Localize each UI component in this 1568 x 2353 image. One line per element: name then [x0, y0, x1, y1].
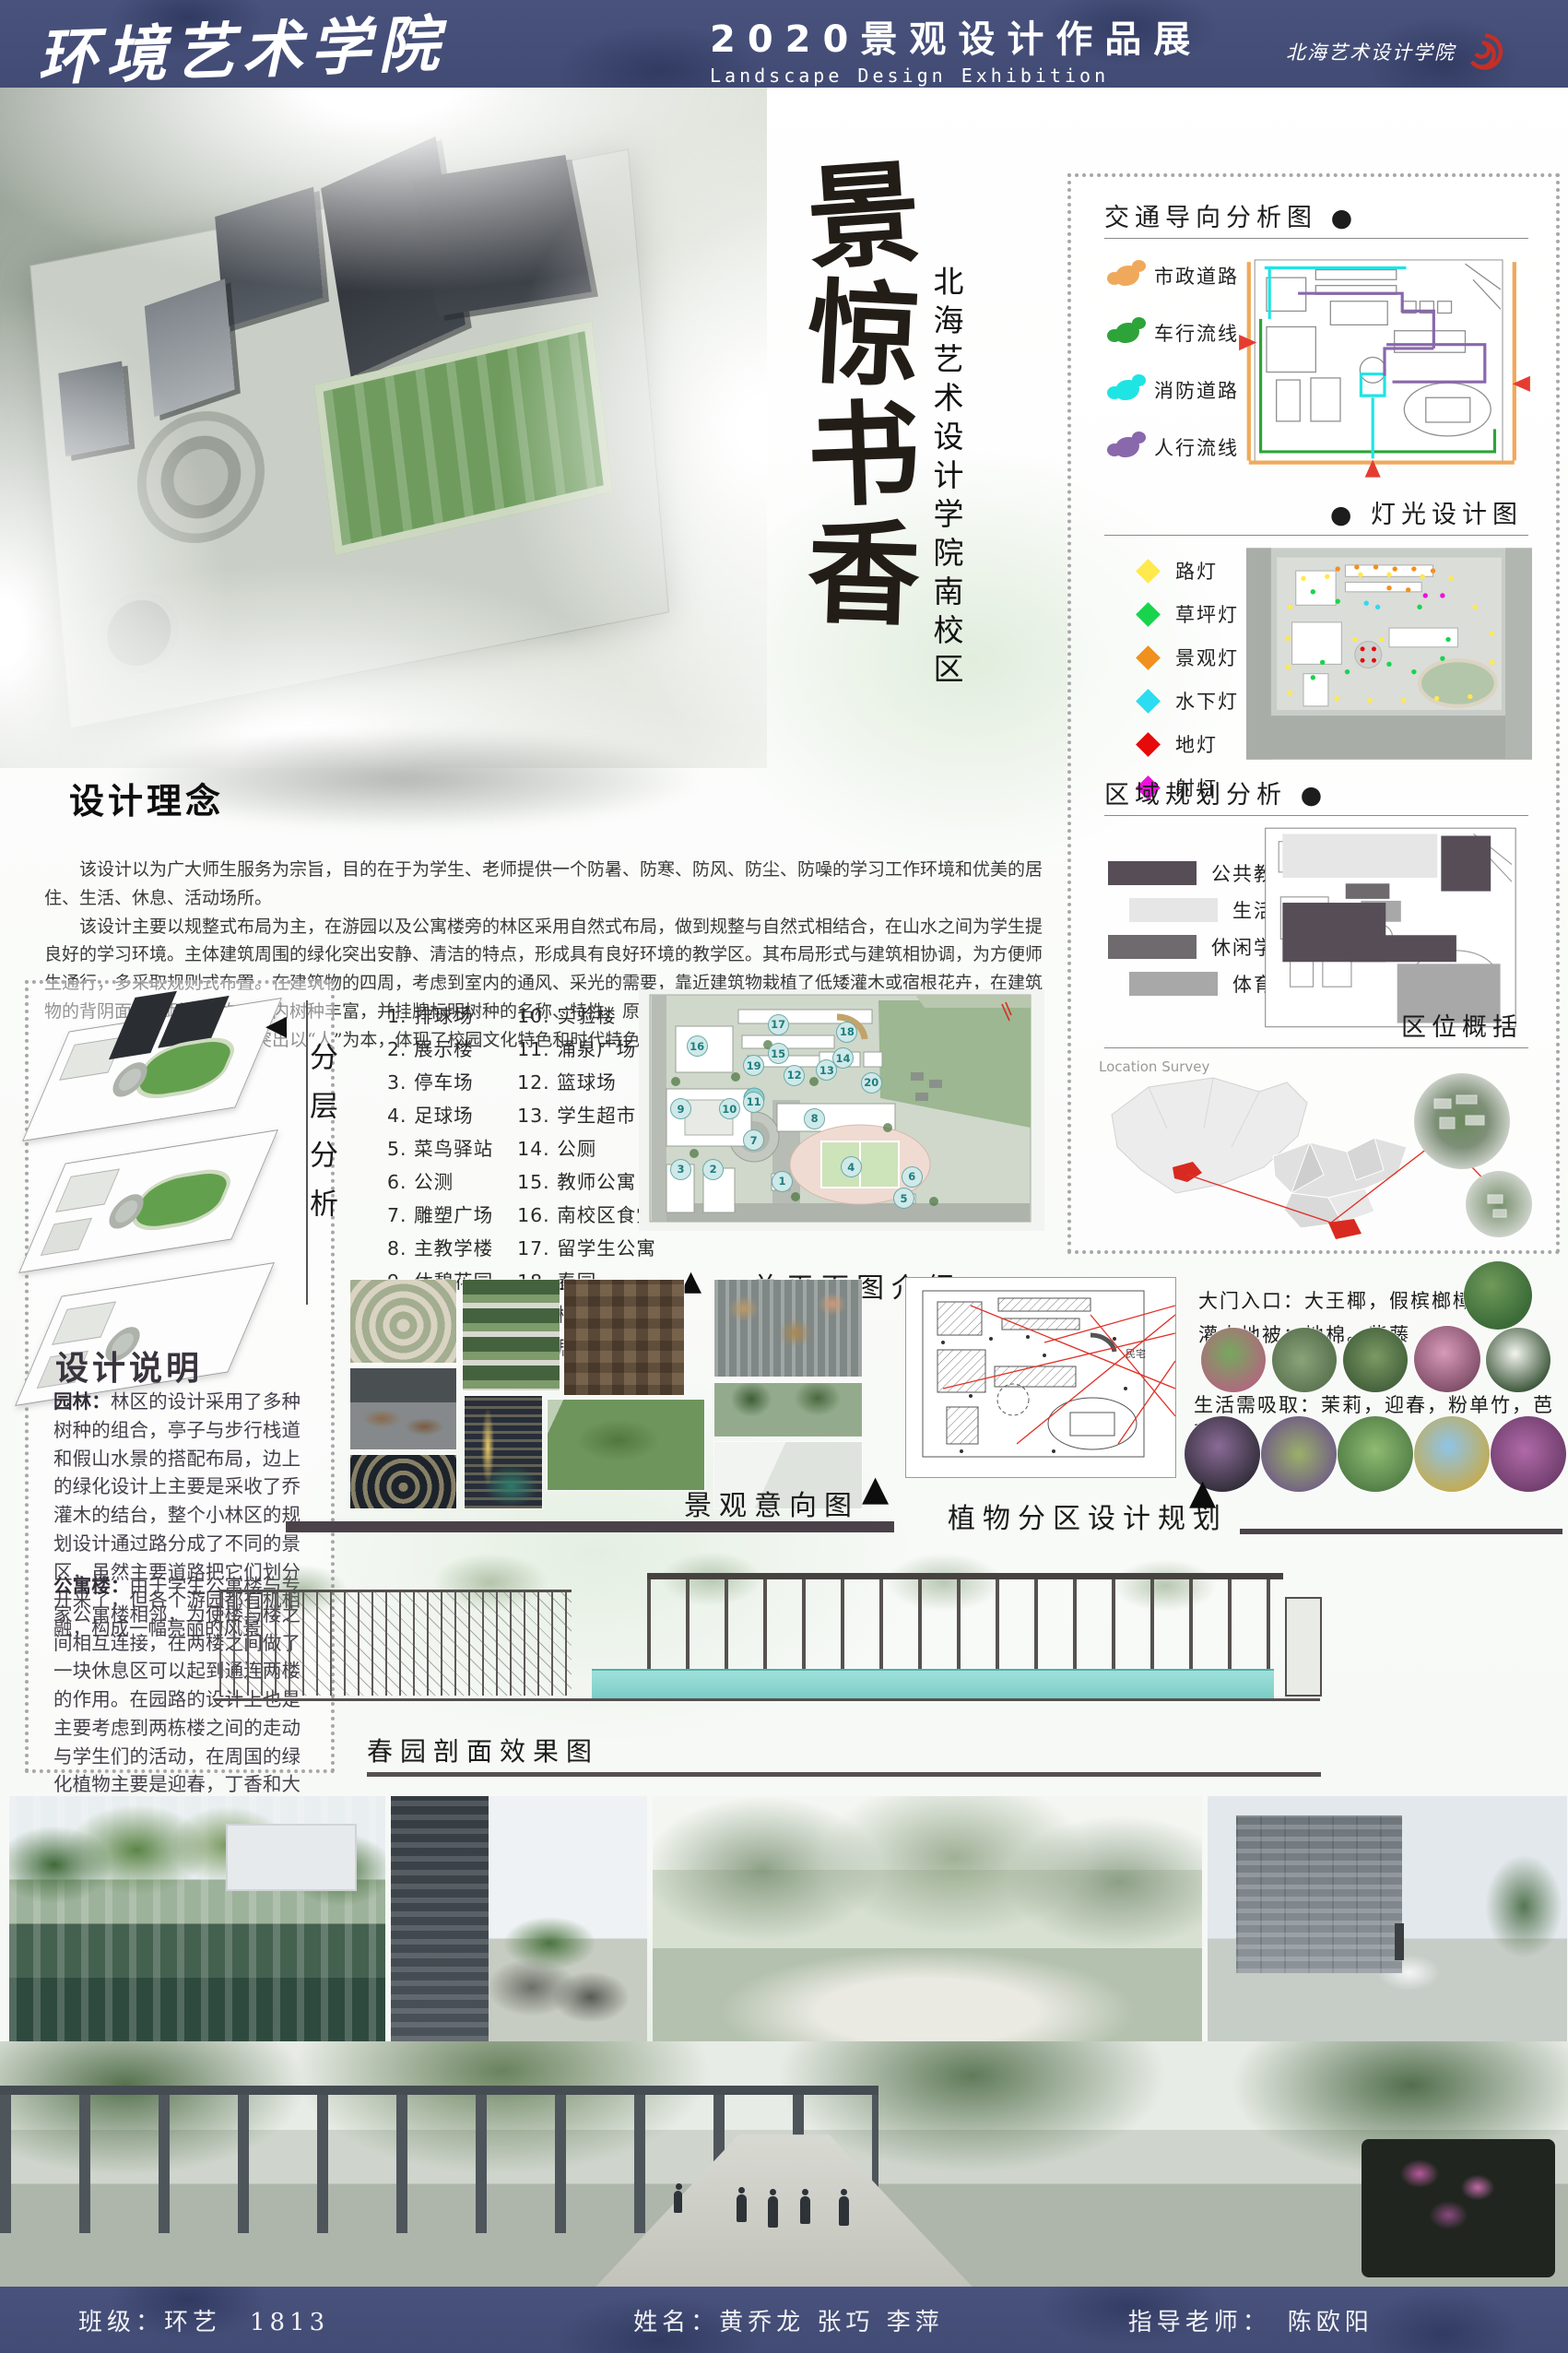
intent-photo [465, 1396, 542, 1508]
plant-photo [1272, 1328, 1337, 1392]
plan-legend-item: 12. 篮球场 [517, 1067, 656, 1094]
plate-building-footprint [41, 1218, 92, 1256]
legend-row: 消防道路 [1115, 376, 1239, 404]
plan-marker: 19 [743, 1055, 764, 1076]
legend-label: 水下灯 [1175, 687, 1239, 715]
description-term: 园林： [53, 1390, 111, 1413]
render-photo-campus-towers [1208, 1796, 1567, 2041]
plate-building-footprint [52, 1301, 116, 1345]
plan-marker: 12 [784, 1065, 805, 1086]
diamond-legend-icon [1136, 732, 1161, 757]
plan-marker: 15 [768, 1043, 789, 1064]
person-silhouette [800, 2196, 810, 2224]
footer-advisor: 指导老师： 陈欧阳 [1128, 2303, 1373, 2337]
campus-aerial-render [0, 88, 767, 768]
plant-plan-drawing: 民宅 [906, 1278, 1175, 1477]
layers-analysis-label: 分层分析 [301, 1042, 342, 1237]
calligraphy-char: 惊 [783, 272, 946, 399]
plan-legend-item: 11. 涌泉广场 [517, 1034, 656, 1061]
plate-building-footprint [55, 1168, 120, 1212]
section-water [592, 1669, 1274, 1698]
plan-marker: 16 [687, 1035, 708, 1057]
spring-garden-section-drawing [214, 1532, 1320, 1701]
legend-label: 车行流线 [1154, 319, 1239, 347]
legend-row: 人行流线 [1115, 433, 1239, 461]
diamond-legend-icon [1136, 689, 1161, 714]
plan-legend-item: 13. 学生超市 [517, 1100, 656, 1128]
person-silhouette [674, 2191, 682, 2213]
up-triangle-icon: ▲ [862, 1468, 889, 1508]
concept-paragraph: 该设计以为广大师生服务为宗旨，目的在于为学生、老师提供一个防暑、防寒、防风、防尘… [44, 856, 1051, 913]
spiral-logo-icon [1465, 31, 1505, 72]
plan-marker: 17 [768, 1014, 789, 1035]
plan-marker: 1 [772, 1171, 793, 1192]
plan-marker: 14 [832, 1047, 854, 1069]
plant-photo [1414, 1416, 1490, 1492]
traffic-analysis-map [1237, 249, 1532, 479]
plan-marker: 4 [841, 1156, 862, 1177]
person-silhouette [839, 2196, 849, 2226]
legend-row: 草坪灯 [1136, 600, 1239, 628]
plan-legend-item: 8. 主教学楼 [387, 1233, 493, 1260]
divider [1104, 815, 1528, 816]
plan-legend-item: 7. 雕塑广场 [387, 1200, 493, 1227]
plan-legend-item: 10. 实验楼 [517, 1000, 656, 1028]
traffic-analysis-title: 交通导向分析图 ● [1104, 197, 1358, 233]
plan-legend-item: 1. 排球场 [387, 1000, 493, 1028]
plan-marker: 8 [804, 1108, 825, 1129]
brand-text: 北海艺术设计学院 [1286, 38, 1456, 65]
blob-legend-icon [1115, 437, 1139, 457]
intent-photo [463, 1280, 560, 1390]
legend-label: 地灯 [1175, 730, 1218, 758]
master-plan-map: 1234567891011121314151617181920 [639, 989, 1044, 1231]
plan-marker: 6 [902, 1166, 923, 1188]
legend-label: 人行流线 [1154, 433, 1239, 461]
swatch-legend-icon [1108, 935, 1197, 959]
legend-row: 市政道路 [1115, 262, 1239, 290]
swatch-legend-icon [1129, 972, 1218, 996]
calligraphy-char: 香 [784, 512, 944, 636]
intent-photo [350, 1280, 456, 1363]
swatch-legend-icon [1108, 861, 1197, 885]
intent-photo [548, 1400, 704, 1490]
zoning-analysis-map [1252, 822, 1533, 1035]
exhibition-title-block: 2020景观设计作品展 Landscape Design Exhibition [710, 9, 1202, 87]
exhibition-title: 2020景观设计作品展 [710, 9, 1202, 63]
divider-bar [286, 1521, 894, 1532]
plant-zoning-label: 植物分区设计规划 [948, 1496, 1228, 1536]
blob-legend-icon [1115, 380, 1139, 400]
plan-marker: 20 [861, 1072, 882, 1094]
person-silhouette [768, 2196, 778, 2228]
plan-marker: 5 [893, 1188, 914, 1209]
plan-legend-item: 14. 公厕 [517, 1133, 656, 1161]
fog-overlay [0, 88, 767, 768]
blob-legend-icon [1115, 266, 1139, 286]
intent-photo [564, 1280, 684, 1395]
legend-row: 车行流线 [1115, 319, 1239, 347]
section-pavilion [1285, 1597, 1322, 1697]
section-view-label: 春园剖面效果图 [367, 1732, 599, 1768]
analysis-panel: 交通导向分析图 ● 市政道路车行流线消防道路人行流线 [1067, 173, 1560, 1254]
concept-title: 设计理念 [69, 773, 224, 823]
plant-note-entrance: 大门入口：大王椰，假槟榔樟树 [1198, 1286, 1495, 1314]
lighting-design-map [1246, 548, 1532, 760]
diamond-legend-icon [1136, 559, 1161, 584]
section-fence [219, 1590, 572, 1696]
plant-photo [1338, 1416, 1413, 1492]
intent-photo [714, 1383, 862, 1437]
plan-marker: 7 [743, 1129, 764, 1151]
intent-label: 景观意向图 [684, 1483, 859, 1523]
intent-photo [350, 1368, 456, 1449]
blob-legend-icon [1115, 323, 1139, 343]
plant-photo [1261, 1416, 1337, 1492]
render-photo-pergola-walkway [0, 2041, 1568, 2287]
plan-marker: 2 [702, 1159, 724, 1180]
description-term: 公寓楼： [53, 1575, 130, 1597]
plant-photo-palm [1464, 1261, 1532, 1330]
plant-photo [1414, 1326, 1480, 1392]
render-photo-rock-garden [391, 1796, 647, 2041]
plan-legend-item: 4. 足球场 [387, 1100, 493, 1128]
legend-label: 消防道路 [1154, 376, 1239, 404]
legend-row: 路灯 [1136, 557, 1239, 585]
diamond-legend-icon [1136, 602, 1161, 627]
zoning-analysis-title: 区域规划分析 ● [1104, 774, 1327, 810]
legend-row: 地灯 [1136, 730, 1239, 758]
location-title: 区位概括 [1401, 1007, 1523, 1043]
lighting-legend: 路灯草坪灯景观灯水下灯地灯射灯 [1136, 557, 1239, 801]
legend-label: 市政道路 [1154, 262, 1239, 290]
plant-photo [1343, 1328, 1408, 1392]
plan-legend-item: 16. 南校区食堂 [517, 1200, 656, 1227]
plan-marker: 3 [670, 1159, 691, 1180]
plan-legend-item: 15. 教师公寓 [517, 1166, 656, 1194]
plant-photo [1201, 1328, 1266, 1392]
legend-row: 水下灯 [1136, 687, 1239, 715]
traffic-legend: 市政道路车行流线消防道路人行流线 [1115, 262, 1239, 461]
plan-marker: 9 [670, 1098, 691, 1119]
legend-label: 景观灯 [1175, 644, 1239, 671]
intent-photo [350, 1455, 456, 1508]
swatch-legend-icon [1129, 898, 1218, 922]
plant-zoning-plan: 民宅 [905, 1277, 1176, 1478]
left-triangle-icon: ◀ [265, 1010, 287, 1042]
exhibition-subtitle: Landscape Design Exhibition [710, 65, 1202, 87]
legend-label: 路灯 [1175, 557, 1218, 585]
plan-legend-item: 17. 留学生公寓 [517, 1233, 656, 1260]
divider [1104, 535, 1528, 536]
render-photo-pond-garden [9, 1796, 385, 2041]
footer-bar: 班级：环艺 1813 姓名：黄乔龙 张巧 李萍 指导老师： 陈欧阳 [0, 2287, 1568, 2353]
up-triangle-icon: ▲ [1189, 1472, 1216, 1512]
calligraphy-char: 书 [784, 393, 944, 517]
person-silhouette [737, 2194, 747, 2222]
lighting-design-title: ● 灯光设计图 [1330, 494, 1523, 530]
poster-board: 环境艺术学院 2020景观设计作品展 Landscape Design Exhi… [0, 0, 1568, 2353]
calligraphy-char: 景 [782, 151, 947, 281]
diamond-legend-icon [1136, 645, 1161, 670]
footer-class: 班级：环艺 1813 [78, 2303, 329, 2337]
school-name: 环境艺术学院 [35, 0, 447, 98]
vertical-subtitle: 北海艺术设计学院南校区 [924, 266, 968, 692]
plan-markers: 1234567891011121314151617181920 [639, 989, 1044, 1231]
plan-legend-item: 6. 公测 [387, 1166, 493, 1194]
plan-marker: 10 [719, 1098, 740, 1119]
plan-legend-item: 5. 菜鸟驿站 [387, 1133, 493, 1161]
plan-legend-item: 3. 停车场 [387, 1067, 493, 1094]
plan-marker: 18 [836, 1022, 857, 1043]
plan-legend-item: 2. 展示楼 [387, 1034, 493, 1061]
vertical-calligraphy-title: 景 惊 书 香 [785, 157, 942, 633]
location-survey-map [1084, 1064, 1550, 1244]
legend-label: 草坪灯 [1175, 600, 1239, 628]
divider [1104, 238, 1528, 239]
divider-bar [367, 1772, 1321, 1777]
header-bar: 环境艺术学院 2020景观设计作品展 Landscape Design Exhi… [0, 0, 1568, 88]
plant-photo [1486, 1328, 1550, 1392]
footer-names: 姓名：黄乔龙 张巧 李萍 [633, 2303, 944, 2337]
divider [1104, 1047, 1528, 1048]
plan-marker: 11 [743, 1092, 764, 1113]
legend-row: 景观灯 [1136, 644, 1239, 671]
render-photo-green-path [653, 1796, 1202, 2041]
brand-logo-block: 北海艺术设计学院 [1286, 31, 1505, 72]
description-title: 设计说明 [55, 1342, 203, 1389]
plant-photo [1491, 1416, 1566, 1492]
flower-planter [1362, 2139, 1555, 2277]
intent-photo [714, 1280, 862, 1377]
